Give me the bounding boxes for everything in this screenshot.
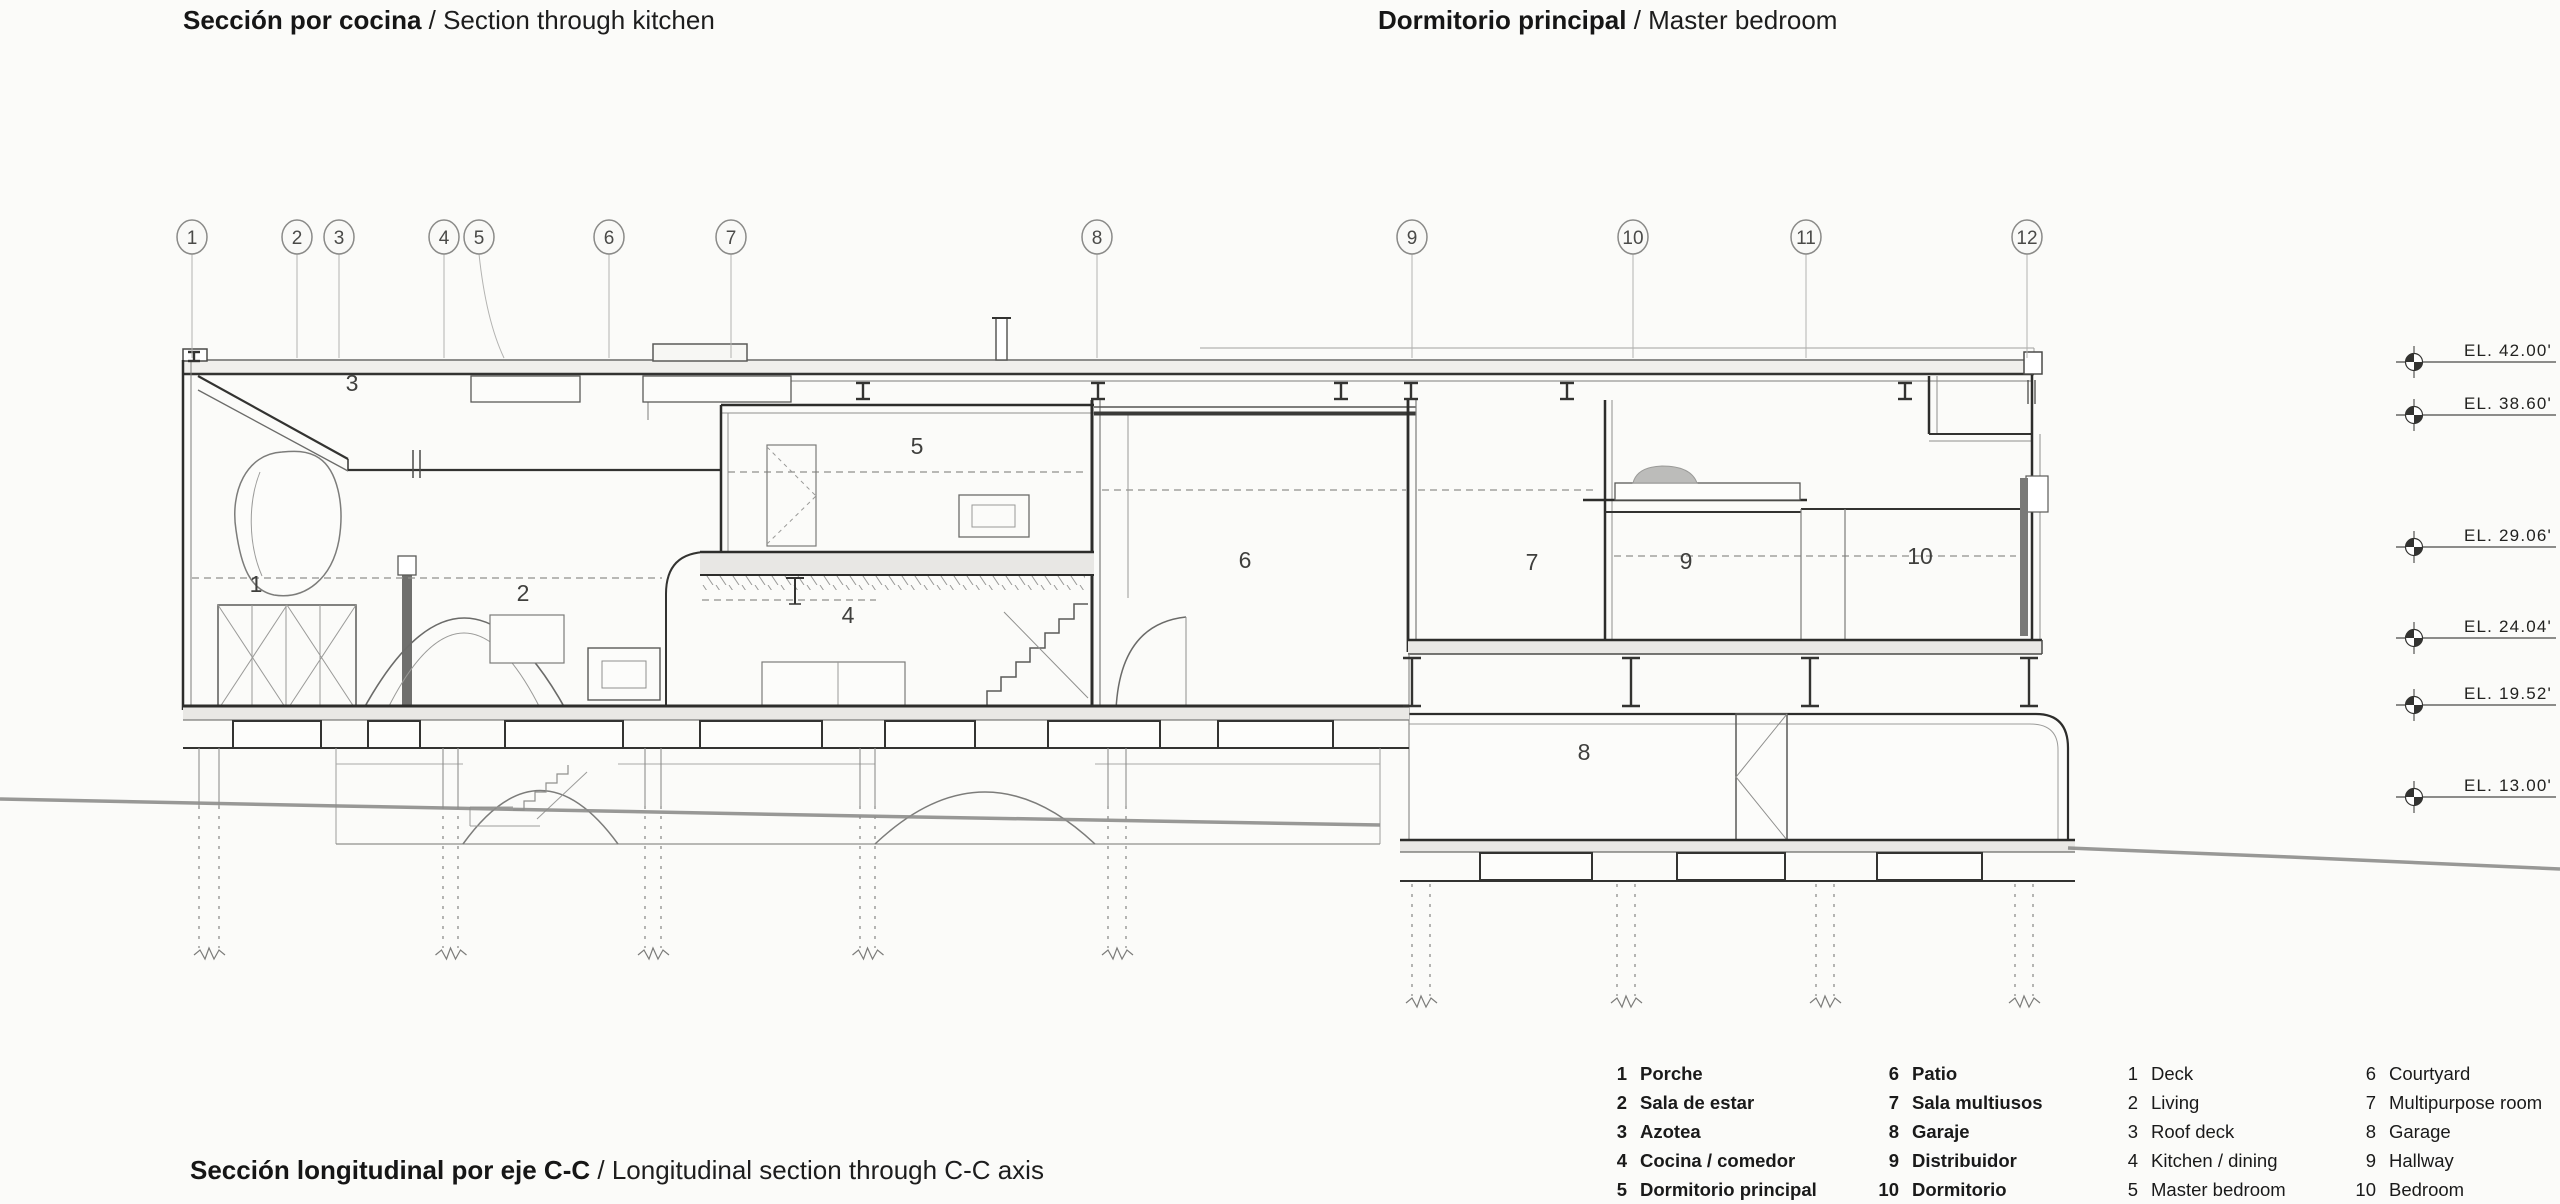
courtyard-right-wall — [1408, 400, 1416, 652]
legend-item: 8Garaje — [1867, 1117, 2043, 1146]
legend-item-label: Garage — [2389, 1117, 2451, 1146]
basement-stairs — [513, 765, 568, 810]
elevation-marker: EL. 24.04' — [2396, 617, 2556, 654]
legend-item-label: Distribuidor — [1912, 1146, 2017, 1175]
legend-item: 1Deck — [2106, 1059, 2286, 1088]
elevation-marker: EL. 13.00' — [2396, 776, 2556, 813]
bedroom-window — [959, 495, 1029, 537]
legend-column-es-0: 1Porche2Sala de estar3Azotea4Cocina / co… — [1595, 1059, 1817, 1204]
legend-item: 3Roof deck — [2106, 1117, 2286, 1146]
legend-item-label: Multipurpose room — [2389, 1088, 2542, 1117]
grid-line-7: 7 — [716, 220, 746, 358]
legend-item-label: Cocina / comedor — [1640, 1146, 1795, 1175]
grid-bubble-label: 1 — [187, 228, 198, 249]
legend-item-number: 1 — [1595, 1059, 1627, 1088]
grid-bubble-label: 7 — [726, 228, 737, 249]
room-number-7: 7 — [1526, 549, 1539, 575]
pile-break-icon — [1810, 996, 1841, 1007]
room-number-2: 2 — [517, 580, 530, 606]
legend-item-number: 10 — [2344, 1175, 2376, 1204]
elevation-marker: EL. 29.06' — [2396, 526, 2556, 563]
grid-line-4: 4 — [429, 220, 459, 358]
legend-item-label: Patio — [1912, 1059, 1957, 1088]
grid-line-1: 1 — [177, 220, 207, 358]
i-column-icon — [1801, 658, 1819, 706]
pile-pair — [2009, 884, 2040, 1007]
left-exterior-wall — [183, 360, 191, 710]
elevation-markers: EL. 42.00'EL. 38.60'EL. 29.06'EL. 24.04'… — [2396, 341, 2556, 813]
curved-stair-hood — [1116, 414, 1186, 710]
main-stairs — [987, 604, 1088, 706]
room-number-8: 8 — [1578, 739, 1591, 765]
legend-item: 4Kitchen / dining — [2106, 1146, 2286, 1175]
grid-leader-line — [479, 254, 504, 358]
legend-item-label: Sala de estar — [1640, 1088, 1754, 1117]
wardrobe — [767, 445, 816, 546]
legend-item: 4Cocina / comedor — [1595, 1146, 1817, 1175]
legend-item-label: Living — [2151, 1088, 2199, 1117]
legend-item-number: 6 — [2344, 1059, 2376, 1088]
i-column-icon — [856, 383, 870, 399]
grid-bubble-label: 4 — [439, 228, 450, 249]
legend-item-number: 8 — [2344, 1117, 2376, 1146]
legend-item-label: Garaje — [1912, 1117, 1970, 1146]
pile-pair — [1611, 884, 1642, 1007]
legend-item-label: Azotea — [1640, 1117, 1701, 1146]
legend-item-label: Deck — [2151, 1059, 2193, 1088]
grid-bubble-label: 11 — [1796, 228, 1816, 249]
grid-bubble-label: 9 — [1407, 228, 1418, 249]
legend-item-label: Porche — [1640, 1059, 1703, 1088]
elevation-label: EL. 42.00' — [2464, 341, 2552, 360]
legend-item-number: 9 — [1867, 1146, 1899, 1175]
legend-item: 2Living — [2106, 1088, 2286, 1117]
legend-item-number: 3 — [2106, 1117, 2138, 1146]
living-room-furniture — [490, 615, 660, 700]
garage — [1400, 654, 2075, 881]
legend-item: 3Azotea — [1595, 1117, 1817, 1146]
pile-pair — [1810, 884, 1841, 1007]
legend-column-en-3: 6Courtyard7Multipurpose room8Garage9Hall… — [2344, 1059, 2542, 1204]
legend-item-number: 6 — [1867, 1059, 1899, 1088]
legend-item: 6Patio — [1867, 1059, 2043, 1088]
pile-break-icon — [1406, 996, 1437, 1007]
legend-item-number: 7 — [1867, 1088, 1899, 1117]
legend-item-number: 2 — [1595, 1088, 1627, 1117]
legend-item-number: 1 — [2106, 1059, 2138, 1088]
grid-line-8: 8 — [1082, 220, 1112, 358]
i-column-icon — [2020, 658, 2038, 706]
structural-grid: 123456789101112 — [177, 220, 2042, 358]
i-column-icon — [1622, 658, 1640, 706]
hallway-bedroom-ceilings — [1605, 509, 2022, 640]
legend-item: 10Bedroom — [2344, 1175, 2542, 1204]
foundation-arch — [463, 791, 618, 845]
pile-pair — [638, 748, 669, 959]
pile-pair — [194, 748, 225, 959]
stove — [588, 648, 660, 700]
legend-item: 9Hallway — [2344, 1146, 2542, 1175]
pile-pair — [436, 748, 467, 959]
grid-line-6: 6 — [594, 220, 624, 358]
crawlspace — [336, 748, 1380, 844]
legend-item: 2Sala de estar — [1595, 1088, 1817, 1117]
legend-item-number: 9 — [2344, 1146, 2376, 1175]
legend-item-label: Courtyard — [2389, 1059, 2470, 1088]
legend-item: 6Courtyard — [2344, 1059, 2542, 1088]
legend-item-number: 4 — [2106, 1146, 2138, 1175]
drawing-sheet: { "titles": { "top_left": {"bold": "Secc… — [0, 0, 2560, 1204]
elevation-label: EL. 13.00' — [2464, 776, 2552, 795]
window-mullion-bar — [2020, 478, 2028, 636]
legend-item: 7Multipurpose room — [2344, 1088, 2542, 1117]
pile-pair — [853, 748, 884, 959]
grid-line-5: 5 — [464, 220, 504, 358]
elevation-label: EL. 38.60' — [2464, 394, 2552, 413]
pile-break-icon — [638, 948, 669, 959]
legend-item-number: 3 — [1595, 1117, 1627, 1146]
room-number-3: 3 — [346, 370, 359, 396]
legend-column-es-1: 6Patio7Sala multiusos8Garaje9Distribuido… — [1867, 1059, 2043, 1204]
pile-pair — [1406, 884, 1437, 1007]
room-number-4: 4 — [842, 602, 855, 628]
grid-bubble-label: 10 — [1622, 228, 1643, 249]
grid-line-9: 9 — [1397, 220, 1427, 358]
i-column-icon — [1560, 383, 1574, 399]
i-column-icon — [1404, 383, 1418, 399]
grid-line-2: 2 — [282, 220, 312, 358]
legend-item-label: Dormitorio principal — [1640, 1175, 1817, 1204]
elevation-label: EL. 24.04' — [2464, 617, 2552, 636]
porch-post — [398, 556, 416, 710]
table — [490, 615, 564, 663]
i-column-icon — [1403, 658, 1421, 706]
legend-item-number: 7 — [2344, 1088, 2376, 1117]
pile-break-icon — [194, 948, 225, 959]
legend-item-number: 4 — [1595, 1146, 1627, 1175]
pile-break-icon — [2009, 996, 2040, 1007]
room-number-9: 9 — [1680, 548, 1693, 574]
legend-item-label: Sala multiusos — [1912, 1088, 2043, 1117]
pile-break-icon — [853, 948, 884, 959]
room-number-6: 6 — [1239, 547, 1252, 573]
i-column-icon — [1898, 383, 1912, 399]
bed — [1615, 483, 1800, 500]
pile-break-icon — [436, 948, 467, 959]
grid-bubble-label: 2 — [292, 228, 303, 249]
grid-bubble-label: 12 — [2016, 228, 2037, 249]
legend-item: 1Porche — [1595, 1059, 1817, 1088]
grid-bubble-label: 8 — [1092, 228, 1103, 249]
legend-item: 5Master bedroom — [2106, 1175, 2286, 1204]
grid-bubble-label: 5 — [474, 228, 485, 249]
roof-deck-parapet — [352, 376, 791, 478]
legend-item-label: Hallway — [2389, 1146, 2454, 1175]
legend-item: 7Sala multiusos — [1867, 1088, 2043, 1117]
grid-line-3: 3 — [324, 220, 354, 358]
grid-line-10: 10 — [1618, 220, 1648, 358]
legend-item-number: 5 — [2106, 1175, 2138, 1204]
ground-line — [0, 799, 2560, 869]
legend-item-number: 5 — [1595, 1175, 1627, 1204]
pillow — [1633, 466, 1697, 483]
legend-item: 10Dormitorio — [1867, 1175, 2043, 1204]
room-number-1: 1 — [250, 571, 263, 597]
pile-break-icon — [1611, 996, 1642, 1007]
legend-item-label: Kitchen / dining — [2151, 1146, 2278, 1175]
legend-item-label: Master bedroom — [2151, 1175, 2286, 1204]
elevation-marker: EL. 38.60' — [2396, 394, 2556, 431]
legend-item-label: Dormitorio — [1912, 1175, 2007, 1204]
legend-item-number: 8 — [1867, 1117, 1899, 1146]
floor-hatch — [702, 576, 1085, 590]
elevation-marker: EL. 19.52' — [2396, 684, 2556, 721]
skylight-box — [643, 376, 791, 402]
porch-lattice — [218, 605, 356, 710]
skylight-box — [471, 376, 580, 402]
legend-item-label: Bedroom — [2389, 1175, 2464, 1204]
pile-break-icon — [1102, 948, 1133, 959]
i-column-icon — [1091, 383, 1105, 399]
room-number-5: 5 — [911, 433, 924, 459]
rooftop-box — [653, 344, 747, 361]
legend-item: 8Garage — [2344, 1117, 2542, 1146]
legend-item: 5Dormitorio principal — [1595, 1175, 1817, 1204]
architectural-section-drawing: 123456789101112 EL. 42.00'EL. 38.60'EL. … — [0, 0, 2560, 1204]
pile-pair — [1102, 748, 1133, 959]
grid-line-12: 12 — [2012, 220, 2042, 358]
i-column-icon — [1334, 383, 1348, 399]
grid-bubble-label: 3 — [334, 228, 345, 249]
roof-vent-pipe — [996, 318, 1007, 360]
legend-item-number: 10 — [1867, 1175, 1899, 1204]
elevation-marker: EL. 42.00' — [2396, 341, 2556, 378]
legend-item-number: 2 — [2106, 1088, 2138, 1117]
courtyard-canopy — [1094, 407, 1416, 414]
grid-line-11: 11 — [1791, 220, 1821, 358]
right-floor-slab — [1408, 640, 2042, 654]
elevation-label: EL. 29.06' — [2464, 526, 2552, 545]
elevation-label: EL. 19.52' — [2464, 684, 2552, 703]
legend-column-en-2: 1Deck2Living3Roof deck4Kitchen / dining5… — [2106, 1059, 2286, 1204]
kitchen-counter — [762, 662, 905, 708]
roof-slab — [183, 318, 2034, 374]
legend-item-label: Roof deck — [2151, 1117, 2234, 1146]
room-number-10: 10 — [1907, 543, 1933, 569]
grid-bubble-label: 6 — [604, 228, 615, 249]
ground-floor-slab — [183, 706, 1409, 748]
multipurpose-hall-walls — [1605, 400, 1612, 648]
legend-item: 9Distribuidor — [1867, 1146, 2043, 1175]
